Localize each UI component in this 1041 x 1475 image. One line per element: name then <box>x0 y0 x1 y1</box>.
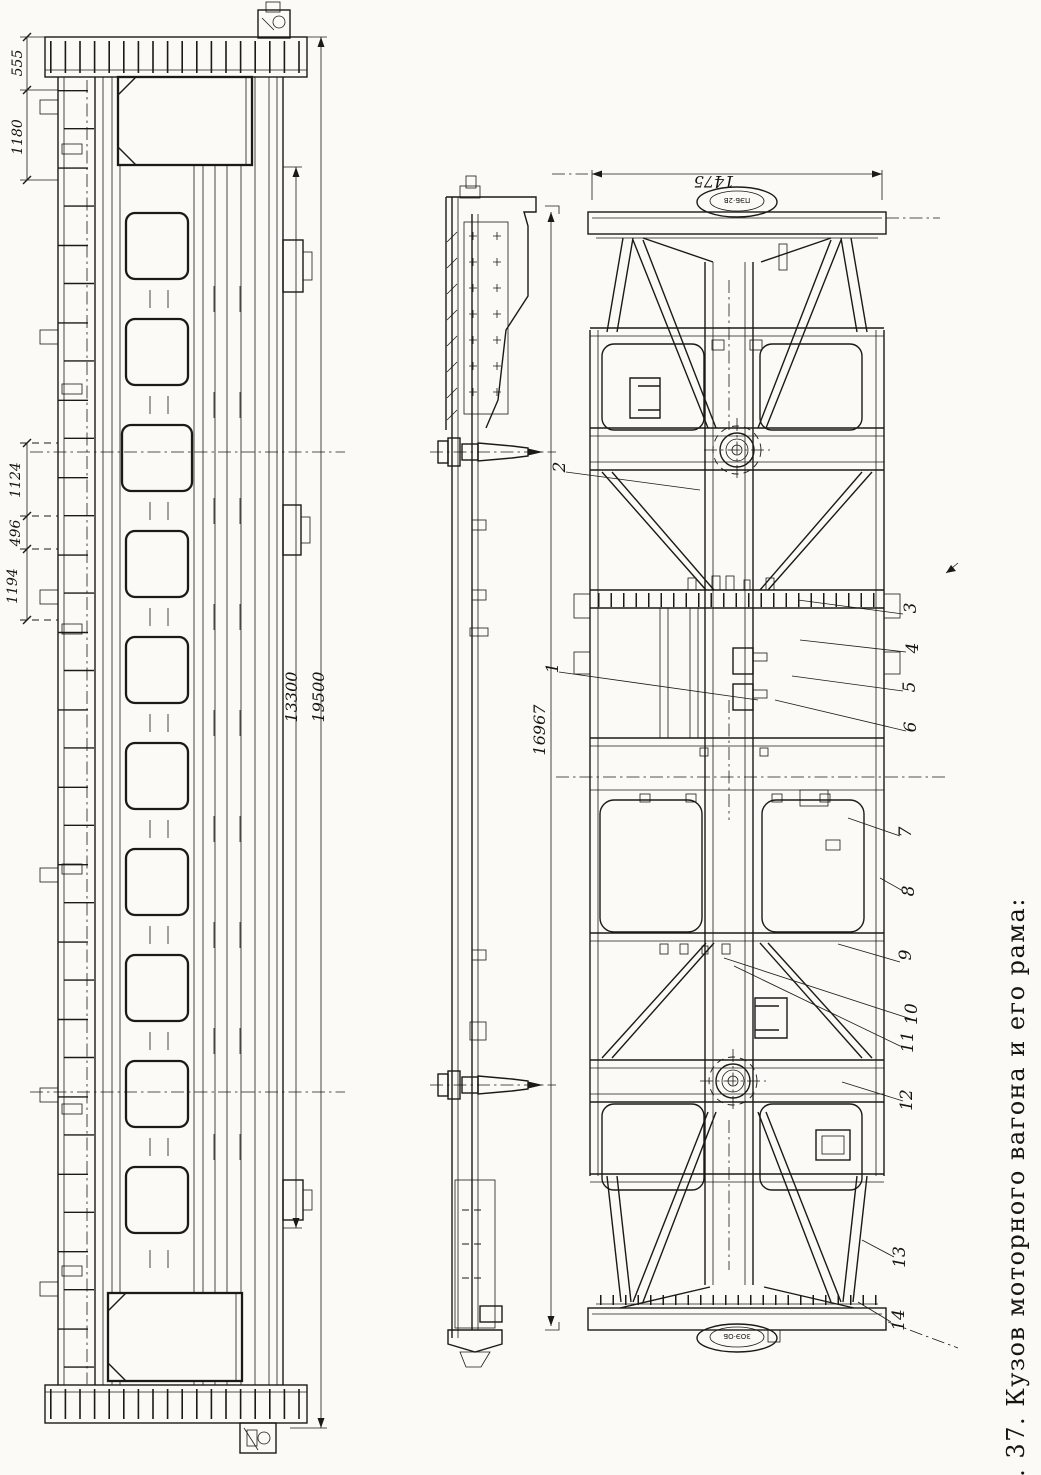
scanned-technical-drawing-page: 555 1180 1124 496 1194 13300 19500 <box>0 0 1041 1475</box>
underframe-side-section-view <box>430 176 556 1367</box>
bottom-end-bracing <box>607 1112 867 1308</box>
callout-9: 9 <box>896 949 916 960</box>
window-pier-marks <box>150 286 240 1268</box>
mid-bracing-top <box>602 472 872 590</box>
mid-channels <box>660 608 698 738</box>
bottom-coupler-head-plan: ЗОЭ·ОБ <box>697 1324 780 1352</box>
coupler-section-top <box>430 438 556 466</box>
axis-lines <box>30 218 958 1348</box>
side-windows <box>122 213 192 1233</box>
dim-1475-label: 1475 <box>694 172 735 191</box>
callout-11: 11 <box>898 1031 918 1053</box>
mid-bracing-bottom <box>602 943 872 1058</box>
callout-14: 14 <box>889 1309 909 1331</box>
top-bolster <box>590 418 884 482</box>
bottom-coupler <box>240 1423 276 1453</box>
figure-37-drawing: 555 1180 1124 496 1194 13300 19500 <box>0 0 1041 1475</box>
dim-555-label: 555 <box>10 50 26 77</box>
callout-12: 12 <box>897 1089 917 1111</box>
frame-plan-view: 1475 ПЭБ·2В <box>552 170 958 1352</box>
callout-3: 3 <box>901 603 921 614</box>
dim-1124-label: 1124 <box>8 462 24 498</box>
callout-7: 7 <box>896 826 916 837</box>
bottom-coupler-stamp: ЗОЭ·ОБ <box>723 1332 751 1340</box>
side-step-brackets <box>283 240 312 1220</box>
callout-8: 8 <box>899 885 919 896</box>
dim-496-label: 496 <box>8 520 24 548</box>
callout-1: 1 <box>543 663 563 674</box>
callout-6: 6 <box>901 721 921 732</box>
section-arrow <box>946 563 958 573</box>
dim-1194-label: 1194 <box>5 568 21 604</box>
callout-5: 5 <box>900 682 920 693</box>
callout-4: 4 <box>903 643 923 655</box>
left-dimension-chain: 555 1180 1124 496 1194 <box>5 33 58 624</box>
lower-assembly-dashes <box>462 1210 486 1278</box>
callout-13: 13 <box>890 1246 910 1268</box>
figure-caption: Рис. 37. Кузов моторного вагона и его ра… <box>1002 897 1030 1475</box>
dim-19500-label: 19500 <box>309 672 328 723</box>
suspension-brackets <box>733 648 767 710</box>
callout-2: 2 <box>550 462 570 474</box>
end-door-opening-bottom <box>108 1293 242 1381</box>
coupler-section-bottom <box>430 1071 556 1099</box>
dim-16967-label: 16967 <box>530 704 549 756</box>
car-body-side-elevation-view <box>40 2 312 1453</box>
top-end-bracing <box>607 238 867 428</box>
dim-1180-label: 1180 <box>10 119 26 155</box>
end-width-dimension: 1475 <box>552 170 882 200</box>
side-sills <box>590 330 884 1176</box>
frame-length-dimension: 16967 <box>530 206 559 1330</box>
dim-13300-label: 13300 <box>282 672 301 723</box>
callout-10: 10 <box>902 1003 922 1025</box>
rivet-plate-marks <box>469 232 501 396</box>
top-coupler <box>258 2 290 38</box>
end-door-opening-top <box>118 77 252 165</box>
top-coupler-stamp: ПЭБ·2В <box>724 196 751 204</box>
